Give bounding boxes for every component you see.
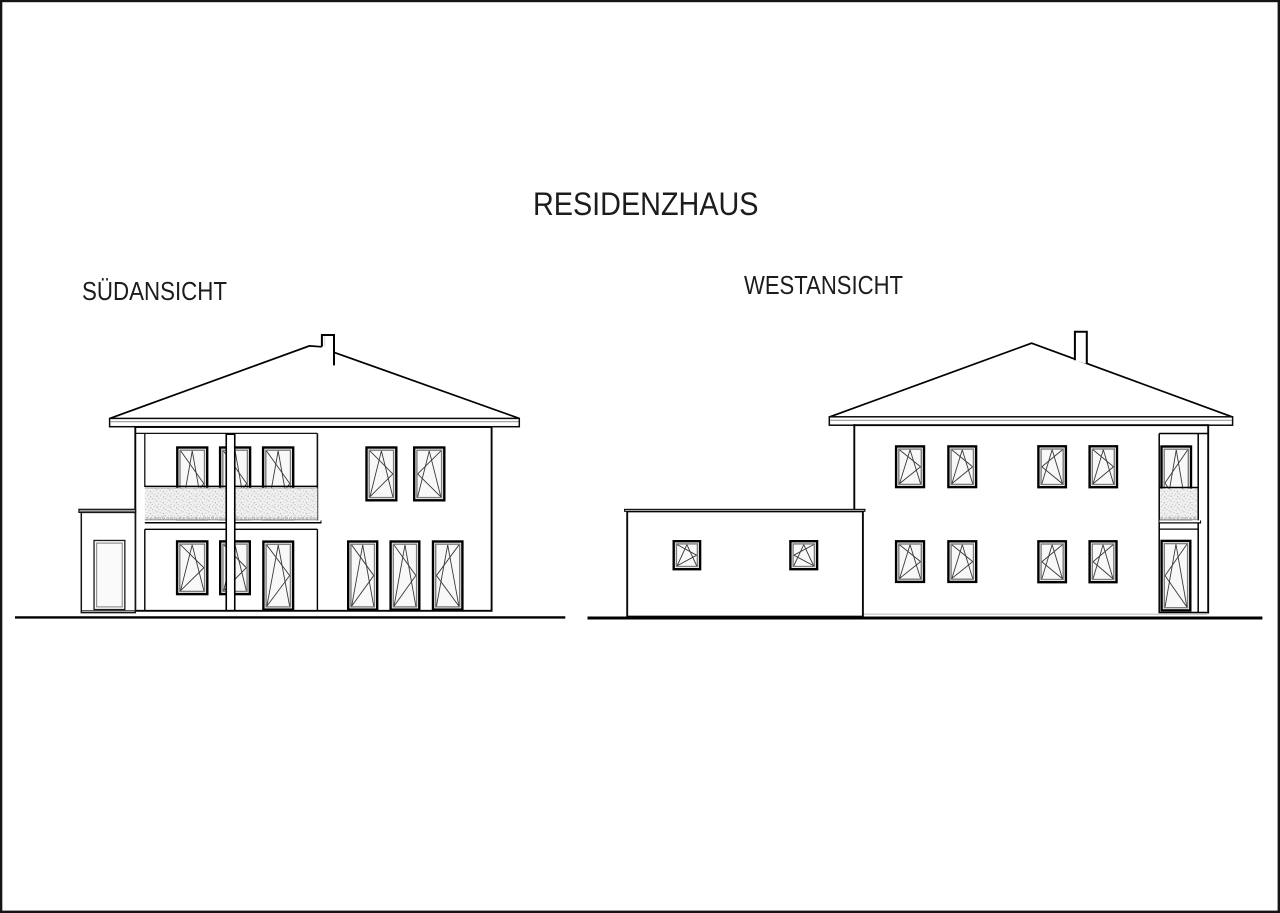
- svg-text:SÜDANSICHT: SÜDANSICHT: [82, 276, 227, 306]
- svg-text:WESTANSICHT: WESTANSICHT: [744, 270, 903, 300]
- svg-text:RESIDENZHAUS: RESIDENZHAUS: [533, 186, 759, 222]
